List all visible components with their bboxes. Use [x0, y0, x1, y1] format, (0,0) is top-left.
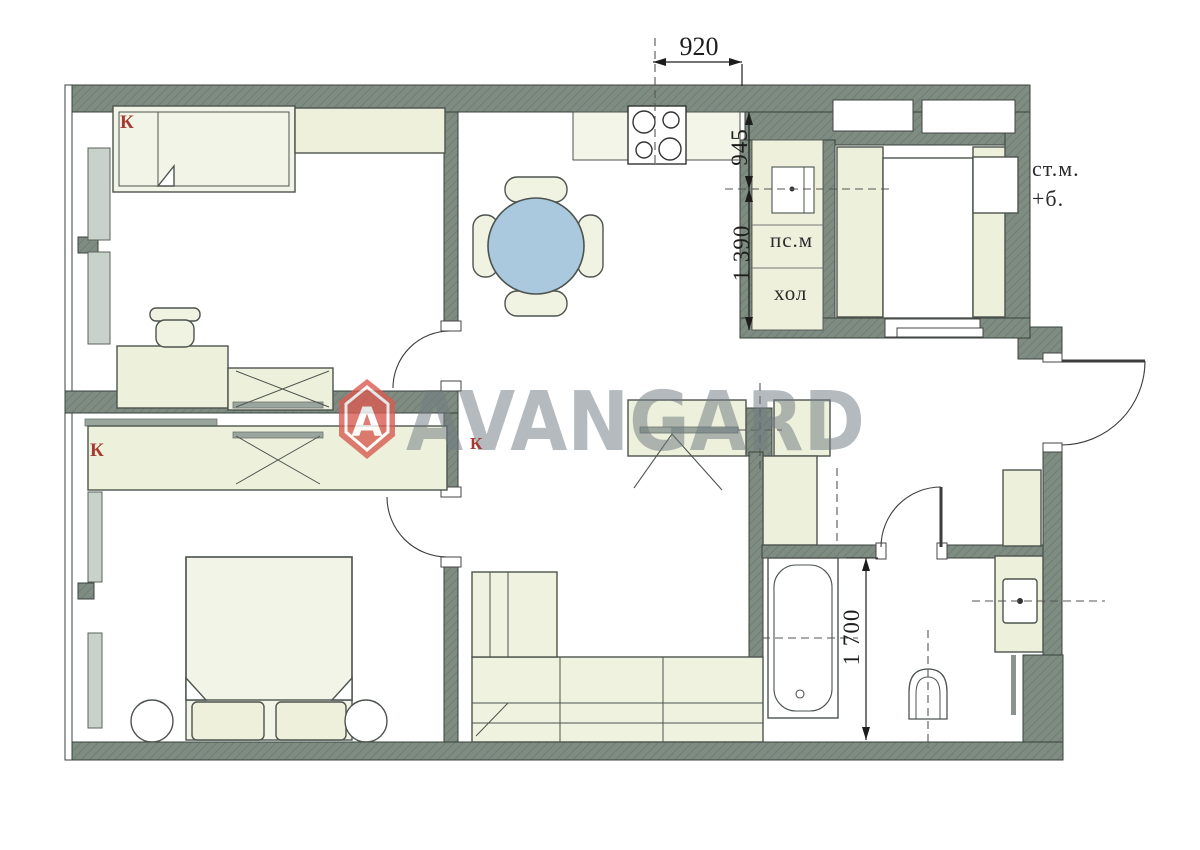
- window-sill: [88, 252, 110, 344]
- door-bathroom: [881, 487, 941, 547]
- wall-bed2-east-lower: [444, 557, 458, 742]
- closet-label-hall: К: [470, 434, 482, 454]
- hall-cabinet-side: [763, 456, 817, 545]
- window-sill: [88, 492, 102, 582]
- wardrobe-bed1: [228, 368, 333, 410]
- bedside-stool-right: [345, 700, 387, 742]
- dim-1700: 1 700: [839, 609, 865, 666]
- wall-column-right: [823, 140, 835, 320]
- cabinet-topright-left: [837, 147, 883, 317]
- wall-shelf: [295, 108, 445, 153]
- wall-left-pier2: [78, 583, 94, 599]
- fridge-label: хол: [774, 281, 807, 306]
- single-bed: [113, 106, 295, 192]
- dim-945: 945: [727, 128, 753, 166]
- floor-plan-drawing: [0, 0, 1200, 850]
- balcony-label: +б.: [1032, 186, 1064, 212]
- wall-hall-pier: [746, 408, 772, 456]
- wall-bottom: [65, 742, 1063, 760]
- door-jamb: [441, 381, 461, 391]
- niche-top-2: [922, 100, 1015, 133]
- wall-bath-north-left: [762, 545, 878, 558]
- stove: [628, 106, 686, 164]
- bed-topright: [883, 158, 973, 318]
- floor-plan: A AVANGARD К К К пс.м хол ст.м. +б. 920 …: [0, 0, 1200, 850]
- wall-left-thin: [65, 85, 72, 760]
- box-topright: [973, 157, 1018, 213]
- closet-label-bed2: К: [90, 440, 104, 462]
- wall-entry-lower: [1043, 445, 1062, 655]
- desk-chair: [150, 308, 200, 347]
- wall-bed1-east: [444, 112, 458, 331]
- hall-wardrobe: [628, 400, 746, 490]
- washer-label: ст.м.: [1032, 156, 1080, 182]
- wardrobe-track: [85, 419, 217, 426]
- door-jamb: [1043, 353, 1062, 362]
- furniture: [85, 106, 1043, 742]
- niche-top-1: [833, 100, 913, 131]
- door-jamb: [441, 321, 461, 331]
- wall-right-upper: [1005, 112, 1030, 330]
- dim-1390: 1 390: [729, 225, 755, 282]
- dining-table: [488, 198, 584, 294]
- balcony-window-sill: [897, 328, 983, 337]
- door-jamb: [1043, 443, 1062, 452]
- desk: [117, 346, 228, 408]
- wardrobe-bed2: [88, 426, 447, 490]
- wall-right-lower: [1023, 655, 1063, 742]
- corner-sofa: [472, 572, 763, 742]
- dim-920: 920: [660, 32, 738, 62]
- window-sill: [88, 633, 102, 728]
- door-entrance: [1062, 361, 1145, 445]
- door-arc-bed2: [387, 497, 447, 557]
- dishwasher-label: пс.м: [770, 228, 813, 253]
- water-heater: [772, 167, 814, 213]
- hall-cabinet-top: [774, 400, 830, 456]
- towel-rail: [1011, 655, 1016, 715]
- closet-label-bed1: К: [120, 112, 134, 134]
- window-sill: [88, 148, 110, 240]
- bedside-stool-left: [131, 700, 173, 742]
- entry-cabinet: [1003, 470, 1041, 546]
- door-jamb: [441, 557, 461, 567]
- vanity-sink: [995, 556, 1043, 652]
- double-bed: [186, 557, 352, 740]
- door-arc-bed1: [393, 331, 450, 388]
